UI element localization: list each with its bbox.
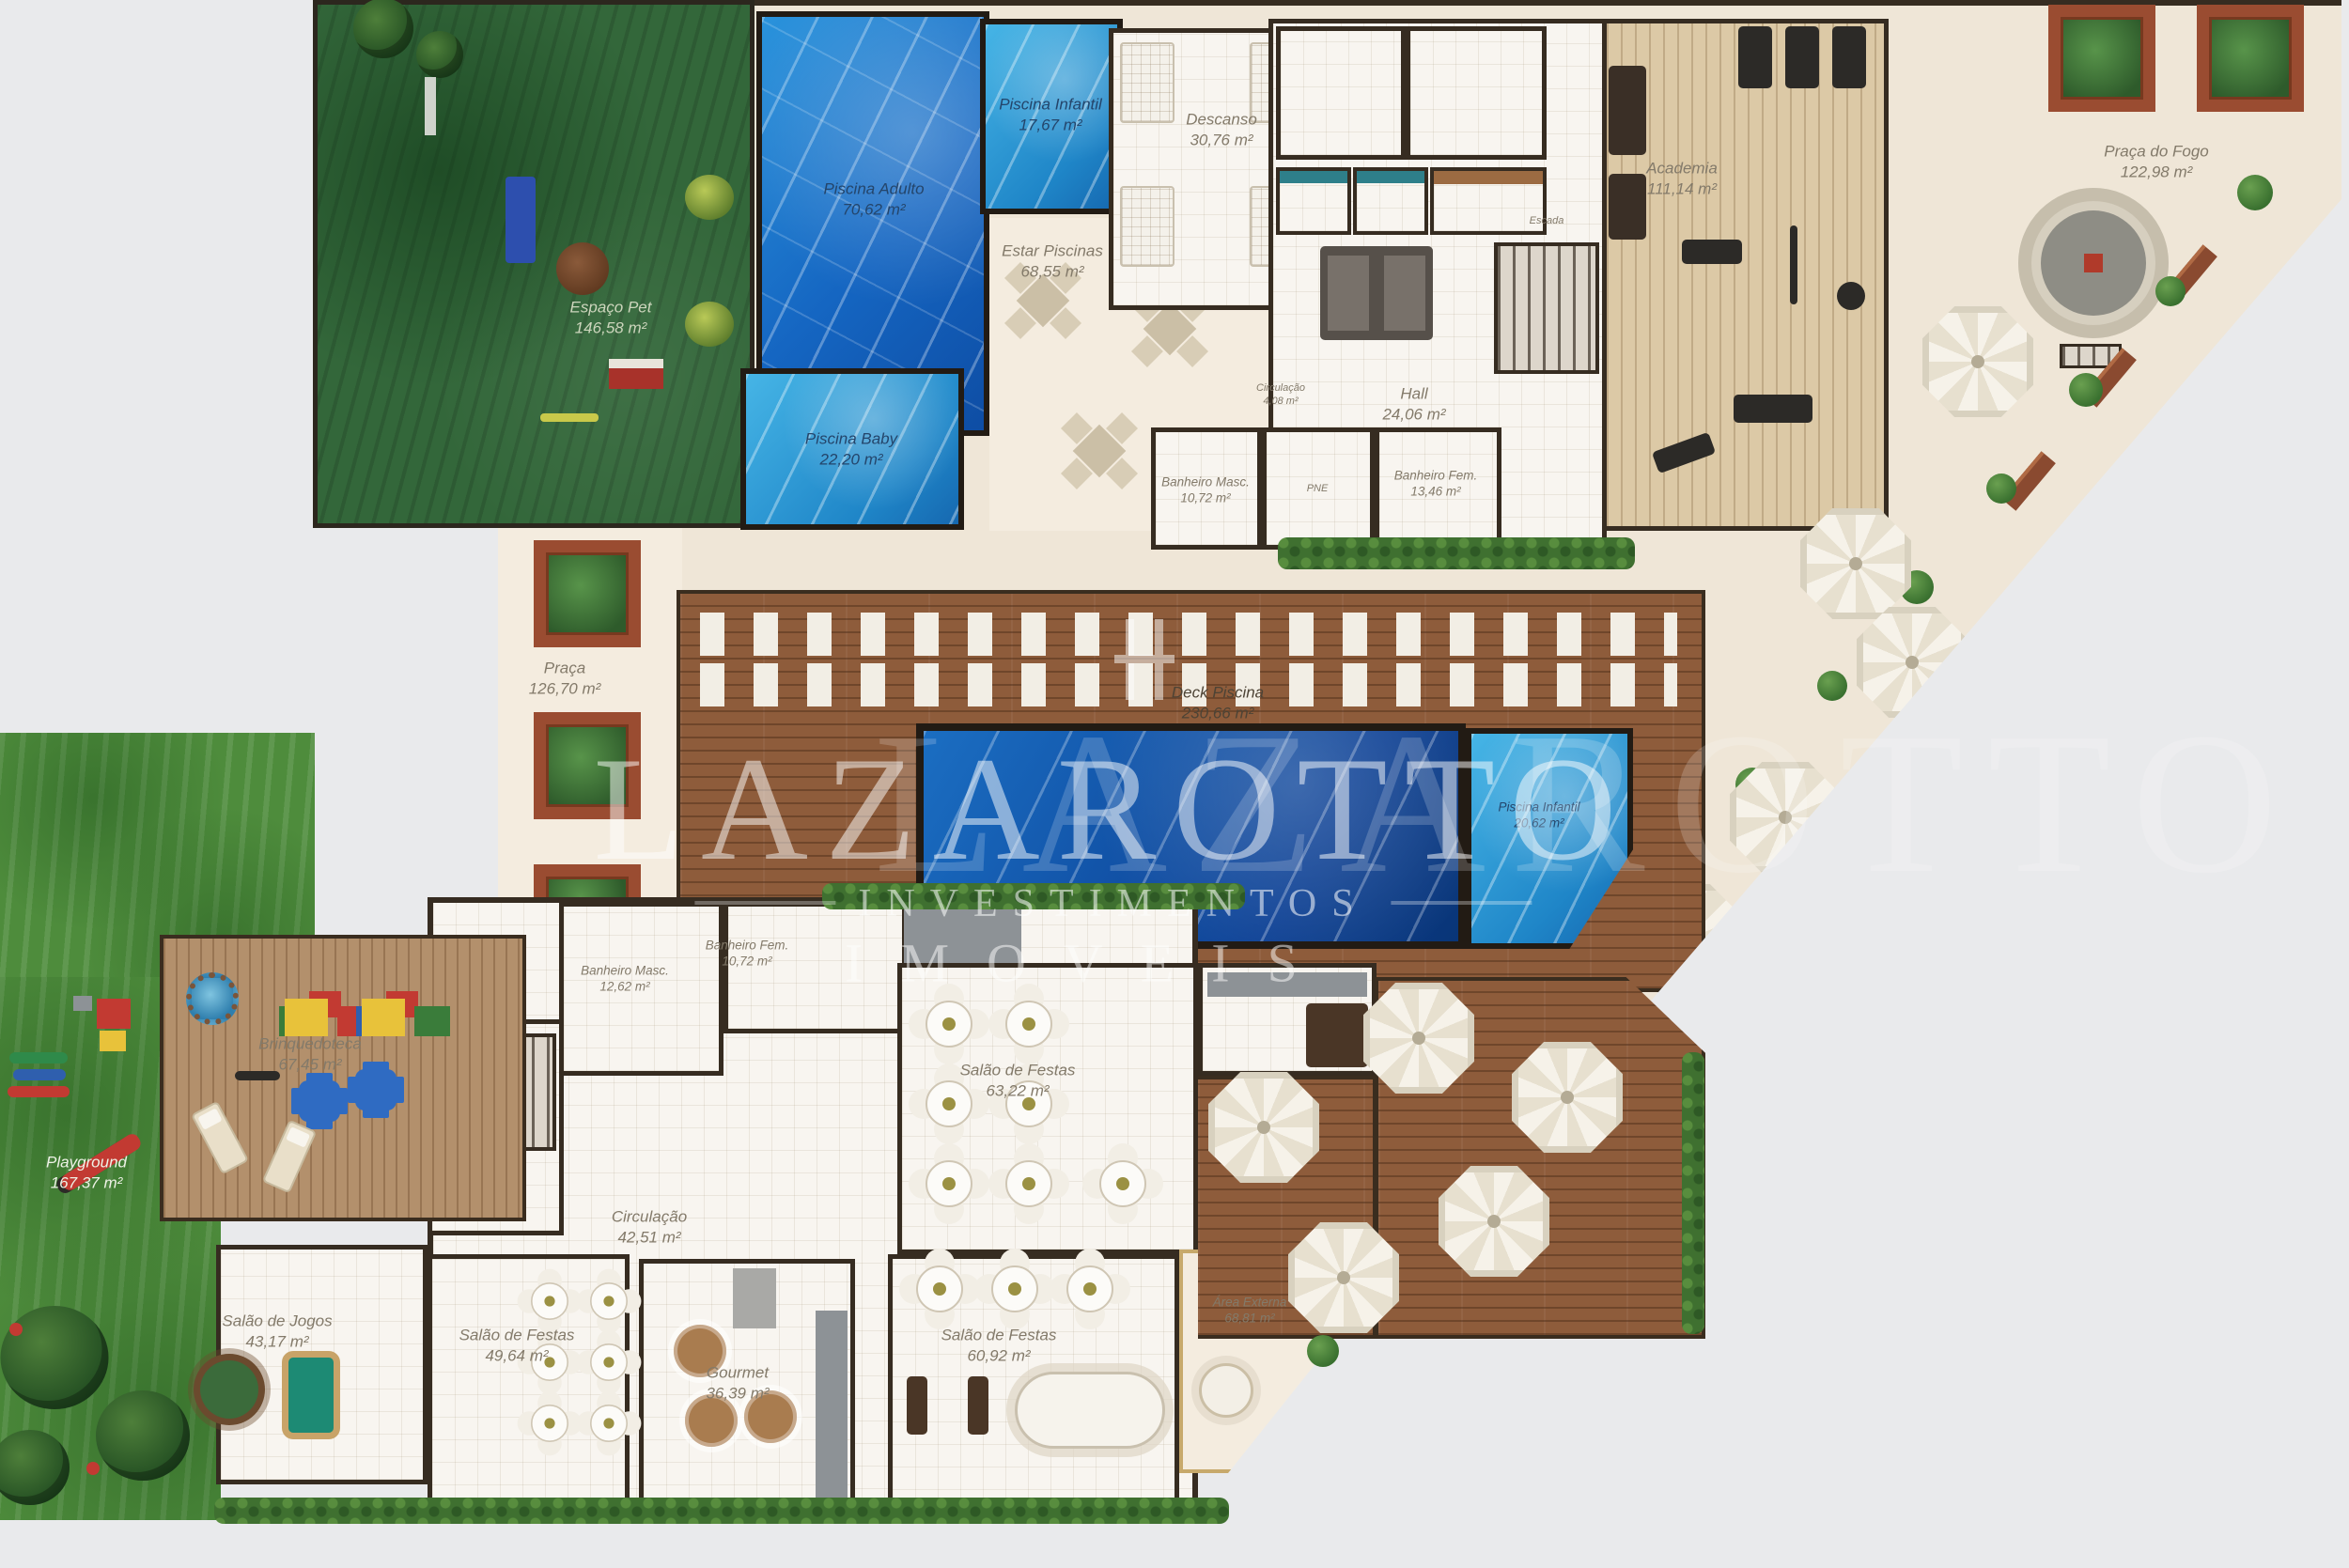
room-label-area-externa: Área Externa68,81 m² [1213,1295,1287,1327]
room-name: Playground [46,1152,127,1172]
palm-bush-icon [685,302,734,347]
room-name: Banheiro Masc. [1153,474,1258,490]
counter [1207,972,1367,997]
pet-sand-circle [556,242,609,295]
shrub-icon [2237,175,2273,210]
party-table-icon [926,1160,972,1207]
room-area: 13,46 m² [1383,484,1488,500]
room-name: Banheiro Fem. [694,938,800,954]
room-name: Salão de Festas [459,1325,575,1345]
play-ball-red [86,1462,100,1475]
room-name: Circulação [612,1206,687,1227]
outdoor-table-icon [1199,1363,1253,1418]
service-room [1276,26,1406,160]
tree-icon [96,1390,190,1481]
room-name: Circulação [1256,381,1305,395]
pet-tunnel [609,359,663,389]
gym-rack [1609,174,1646,240]
planter-icon [534,712,641,819]
oval-table-icon [1015,1372,1165,1449]
room-area: 70,62 m² [821,199,926,220]
room-label-salao-jogos: Salão de Jogos43,17 m² [222,1311,332,1352]
shrub-icon [1817,671,1847,701]
tree-icon [416,31,463,78]
planter-icon [2197,5,2304,112]
party-table-icon [531,1282,568,1320]
room-area: 146,58 m² [570,318,652,338]
room-area: 111,14 m² [1646,179,1718,199]
room-label-espaco-pet: Espaço Pet146,58 m² [570,297,652,338]
room-name: Deck Piscina [1172,682,1264,703]
planter-icon [534,540,641,647]
room-name: Espaço Pet [570,297,652,318]
pet-bench [540,413,599,422]
planter-icon [2048,5,2155,112]
room-area: 10,72 m² [1153,490,1258,506]
party-table-icon [1005,1160,1052,1207]
room-area: 30,76 m² [1186,130,1257,150]
room-area: 43,17 m² [222,1331,332,1352]
room-name: Brinquedoteca [258,1033,362,1054]
shrub-icon [2155,276,2186,306]
room-name: Descanso [1186,109,1257,130]
lounger-icon [1120,42,1174,123]
room-name: Praça [529,658,601,678]
watermark-logo-icon [1114,619,1174,700]
treadmill-icon [1738,26,1772,88]
room-label-piscina-infantil-top: Piscina Infantil17,67 m² [998,94,1103,135]
room-area: 68,81 m² [1213,1311,1287,1327]
room-label-banheiro-masc-inf: Banheiro Masc.12,62 m² [572,963,677,996]
fire-pit-center [2084,254,2103,272]
room-name: Banheiro Masc. [572,963,677,979]
pool-table-icon [282,1351,340,1439]
espaco-pet-lawn [313,0,754,528]
room-label-gourmet: Gourmet36,39 m² [706,1362,769,1404]
shrub-icon [1307,1335,1339,1367]
room-label-brinquedoteca: Brinquedoteca67,45 m² [258,1033,362,1075]
seesaw-blue [13,1069,66,1080]
room-label-pne: PNE [1307,482,1329,495]
umbrella-icon [1208,1072,1319,1183]
floor-plan-image: Espaço Pet146,58 m² Praça126,70 m² Pisci… [0,0,2349,1568]
umbrella-icon [1800,508,1911,619]
room-label-circulacao-pequena: Circulação4,08 m² [1256,381,1305,408]
room-label-banheiro-masc-sup: Banheiro Masc.10,72 m² [1153,474,1258,507]
sauna-bench [1280,171,1347,183]
room-area: 60,92 m² [941,1345,1057,1366]
room-name: Escada [1530,214,1564,227]
kids-table-icon [362,999,405,1036]
sauna-room [1353,167,1428,235]
room-label-academia: Academia111,14 m² [1646,158,1718,199]
palm-bush-icon [685,175,734,220]
seesaw-green [9,1052,68,1063]
room-area: 230,66 m² [1172,703,1264,723]
room-label-piscina-baby: Piscina Baby22,20 m² [799,428,904,470]
room-area: 67,45 m² [258,1054,362,1075]
play-cube-gray [73,996,92,1011]
room-area: 4,08 m² [1256,395,1305,408]
room-area: 22,20 m² [799,449,904,470]
party-table-icon [590,1405,628,1442]
umbrella-icon [1922,306,2033,417]
cabinet [907,1376,927,1435]
room-area: 126,70 m² [529,678,601,699]
kids-table-icon [285,999,328,1036]
treadmill-icon [1832,26,1866,88]
room-area: 68,55 m² [1002,261,1103,282]
umbrella-icon [1363,983,1474,1094]
room-area: 20,62 m² [1486,815,1592,831]
room-name: Salão de Festas [960,1060,1076,1080]
room-name: PNE [1307,482,1329,495]
party-table-icon [1099,1160,1146,1207]
room-label-escada: Escada [1530,214,1564,227]
gym-bench [1682,240,1742,264]
room-area: 17,67 m² [998,115,1103,135]
room-label-praca: Praça126,70 m² [529,658,601,699]
umbrella-icon [1512,1042,1623,1153]
room-area: 63,22 m² [960,1080,1076,1101]
cabinet [1306,1003,1368,1067]
room-name: Piscina Baby [799,428,904,449]
room-label-deck-piscina: Deck Piscina230,66 m² [1172,682,1264,723]
room-label-piscina-infantil-centro: Piscina Infantil20,62 m² [1486,800,1592,832]
gym-rack [1609,66,1646,155]
room-label-salao-festas-3: Salão de Festas60,92 m² [941,1325,1057,1366]
room-area: 36,39 m² [706,1383,769,1404]
counter [1434,171,1543,184]
service-room [1406,26,1547,160]
umbrella-icon [1439,1166,1549,1277]
stairs [1494,242,1599,374]
elevators [1320,246,1433,340]
room-label-descanso: Descanso30,76 m² [1186,109,1257,150]
party-table-icon [590,1282,628,1320]
party-table-icon [991,1265,1038,1312]
pet-blue-mat [506,177,536,263]
lounger-row [700,613,1677,656]
room-area: 49,64 m² [459,1345,575,1366]
room-name: Banheiro Fem. [1383,468,1488,484]
room-label-banheiro-fem-sup: Banheiro Fem.13,46 m² [1383,468,1488,501]
sauna-bench [1357,171,1424,183]
room-name: Praça do Fogo [2104,141,2209,162]
gym-bar [1790,225,1797,304]
hedge-strip [214,1498,1229,1524]
party-table-icon [590,1343,628,1381]
party-table-icon [531,1405,568,1442]
room-name: Salão de Festas [941,1325,1057,1345]
shrub-icon [2069,373,2103,407]
water-mirror-icon [186,972,239,1025]
play-ball-red [9,1323,23,1336]
shrub-icon [1986,474,2016,504]
room-label-praca-do-fogo: Praça do Fogo122,98 m² [2104,141,2209,182]
room-name: Piscina Infantil [998,94,1103,115]
room-name: Área Externa [1213,1295,1287,1311]
room-area: 42,51 m² [612,1227,687,1248]
pet-agility-pole [425,77,436,135]
fire-pit-plaza [2018,188,2169,338]
room-name: Piscina Infantil [1486,800,1592,815]
party-table-icon [926,1001,972,1048]
play-mat-icon [355,1069,397,1110]
tree-icon [1,1306,109,1409]
umbrella-icon [1288,1222,1399,1333]
room-name: Salão de Jogos [222,1311,332,1331]
party-table-icon [1005,1001,1052,1048]
play-mat-icon [299,1080,340,1122]
hedge-strip [1278,537,1635,569]
seesaw-red [8,1086,70,1097]
room-name: Hall [1382,383,1445,404]
room-label-playground: Playground167,37 m² [46,1152,127,1193]
room-label-banheiro-fem-inf: Banheiro Fem.10,72 m² [694,938,800,970]
room-name: Piscina Adulto [821,179,926,199]
tree-icon [353,0,413,58]
treadmill-icon [1785,26,1819,88]
room-area: 122,98 m² [2104,162,2209,182]
room-label-estar-piscinas: Estar Piscinas68,55 m² [1002,241,1103,282]
room-name: Academia [1646,158,1718,179]
hedge-strip [1682,1052,1704,1334]
room-label-circulacao: Circulação42,51 m² [612,1206,687,1248]
room-name: Gourmet [706,1362,769,1383]
play-cube-red [97,999,131,1029]
hedge-strip [822,883,1245,909]
play-cube-yellow [100,1031,126,1051]
elevator-cab [1384,256,1425,331]
storage-room [904,907,1021,970]
cabinet [968,1376,988,1435]
room-label-hall: Hall24,06 m² [1382,383,1445,425]
party-table-icon [1066,1265,1113,1312]
card-table-icon [200,1360,258,1419]
room-area: 10,72 m² [694,954,800,970]
room-name: Estar Piscinas [1002,241,1103,261]
room-label-piscina-adulto: Piscina Adulto70,62 m² [821,179,926,220]
room-area: 24,06 m² [1382,404,1445,425]
room-label-salao-festas-2: Salão de Festas49,64 m² [459,1325,575,1366]
room-area: 12,62 m² [572,979,677,995]
gourmet-counter [816,1311,848,1498]
elevator-cab [1328,256,1369,331]
party-table-icon [916,1265,963,1312]
sauna-room [1276,167,1351,235]
gym-ball [1837,282,1865,310]
room-label-salao-festas-1: Salão de Festas63,22 m² [960,1060,1076,1101]
room-area: 167,37 m² [46,1172,127,1193]
gym-station [1734,395,1812,423]
grill-icon [733,1268,776,1328]
lounger-icon [1120,186,1174,267]
